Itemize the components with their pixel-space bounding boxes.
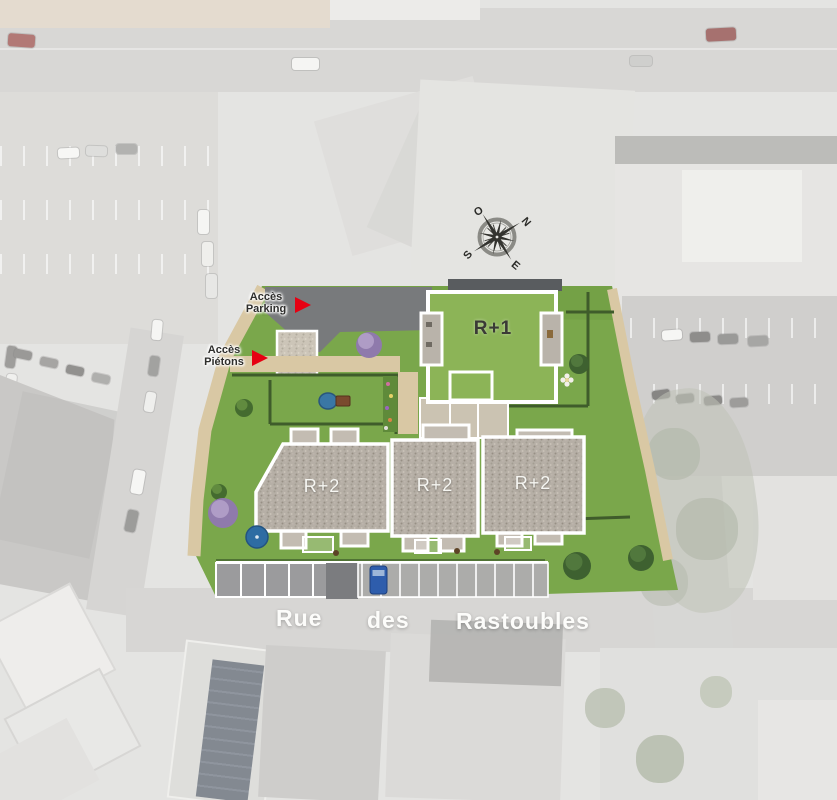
street-parking-strip: [216, 561, 548, 599]
street-name-word-1: Rue: [276, 605, 322, 632]
parasol-icon: [246, 526, 268, 548]
compass-east-label: E: [509, 259, 522, 273]
site-plan-canvas: N O S E Accès Parking Accès Piétons R+1 …: [0, 0, 837, 800]
building-r1: [421, 292, 562, 402]
building-r2-center-label: R+2: [405, 475, 465, 496]
access-pedestrian-line2: Piétons: [196, 356, 252, 368]
blue-car-icon: [370, 566, 387, 594]
access-pedestrian-line1: Accès: [196, 344, 252, 356]
shrub-icon: [454, 548, 460, 554]
compass-north-label: N: [519, 215, 533, 229]
access-parking-line2: Parking: [238, 303, 294, 315]
balcony-east: [541, 313, 562, 365]
shrub-icon: [333, 550, 339, 556]
balcony-west: [421, 313, 442, 365]
shrub-icon: [494, 549, 500, 555]
access-parking-label: Accès Parking: [238, 291, 294, 316]
garden-table-icon: [336, 396, 350, 406]
flower-bed: [383, 376, 397, 432]
compass-west-label: O: [472, 204, 486, 219]
compass-south-label: S: [461, 248, 475, 261]
street-name-word-2: des: [367, 607, 410, 634]
building-r2-west-label: R+2: [292, 476, 352, 497]
access-parking-line1: Accès: [238, 291, 294, 303]
garden-path-vertical: [398, 372, 418, 434]
pond-icon: [319, 393, 337, 409]
building-r1-label: R+1: [462, 318, 524, 340]
building-r2-east-label: R+2: [503, 473, 563, 494]
street-name-word-3: Rastoubles: [456, 608, 590, 635]
compass-rose-icon: N O S E: [461, 204, 533, 273]
site-plan-drawing: N O S E: [0, 0, 837, 800]
access-pedestrian-label: Accès Piétons: [196, 344, 252, 369]
asphalt-strip: [448, 279, 562, 291]
